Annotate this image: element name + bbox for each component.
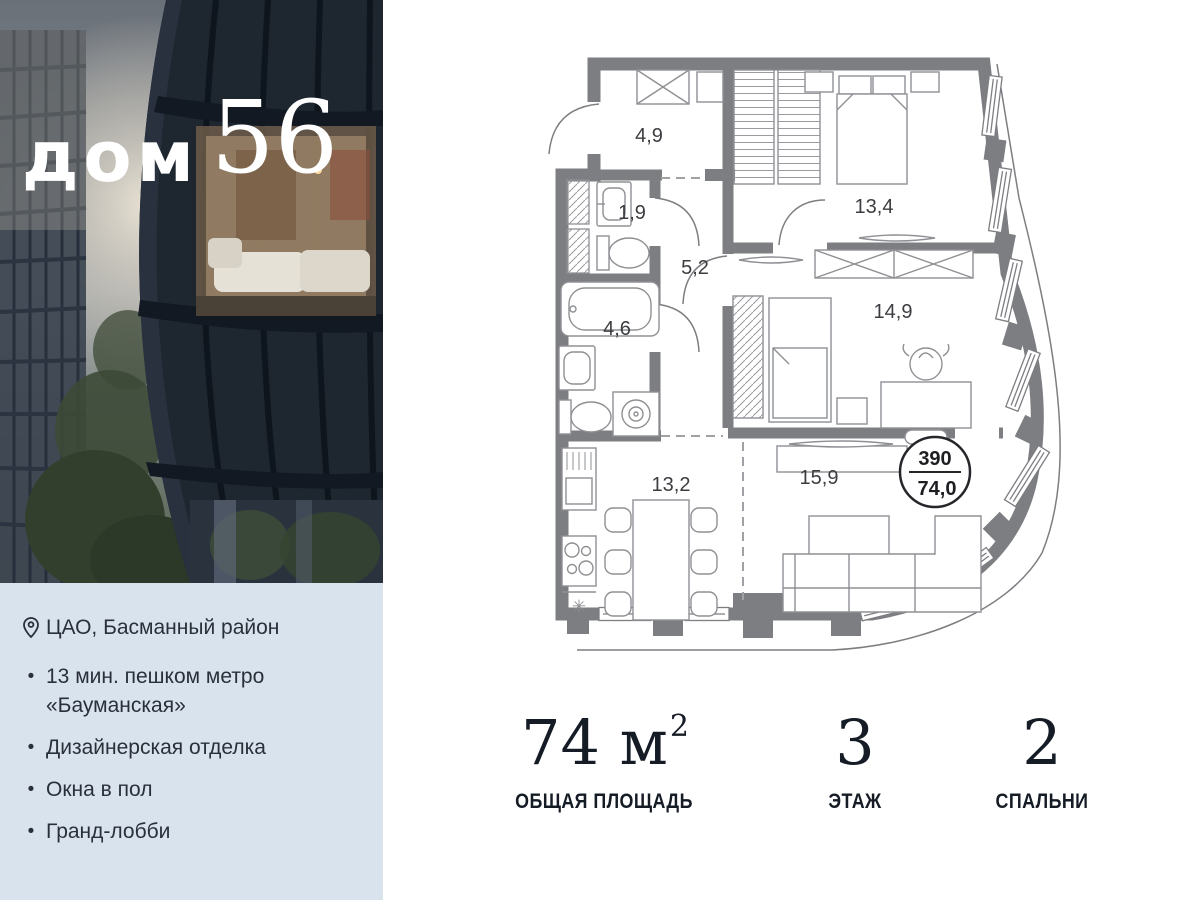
- room-label-corridor: 5,2: [681, 257, 709, 279]
- feature-text: Окна в пол: [46, 775, 152, 804]
- feature-location: ЦАО, Басманный район: [16, 613, 369, 649]
- stat-bedrooms: 2 СПАЛЬНИ: [987, 712, 1096, 814]
- logo: дом 56: [22, 88, 338, 192]
- feature-location-text: ЦАО, Басманный район: [46, 613, 279, 649]
- room-label-bathroom: 4,6: [603, 318, 631, 340]
- feature-text: Дизайнерская отделка: [46, 733, 266, 762]
- feature-text: Гранд-лобби: [46, 817, 170, 846]
- feature-item: • Гранд-лобби: [16, 817, 369, 846]
- bullet-dot: •: [16, 662, 46, 720]
- feature-item: • 13 мин. пешком метро «Бауманская»: [16, 662, 369, 720]
- unit-badge: 390 74,0: [900, 437, 970, 507]
- stat-floor-value: 3: [824, 712, 887, 774]
- stat-total-area-label: ОБЩАЯ ПЛОЩАДЬ: [515, 790, 693, 814]
- room-label-kitchen: 13,2: [652, 474, 691, 496]
- brochure-page: { "logo": { "word": "дом", "number": "56…: [0, 0, 1200, 900]
- stat-floor-label: ЭТАЖ: [828, 790, 881, 814]
- stat-total-area-value: 74 м2: [500, 712, 709, 774]
- badge-unit-number: 390: [918, 448, 951, 470]
- room-label-bedroom2: 14,9: [874, 301, 913, 323]
- room-label-wc: 1,9: [618, 202, 646, 224]
- fridge-icon: ✳: [572, 597, 586, 616]
- feature-item: • Дизайнерская отделка: [16, 733, 369, 762]
- stat-floor: 3 ЭТАЖ: [824, 712, 887, 814]
- stat-bedrooms-label: СПАЛЬНИ: [996, 790, 1089, 814]
- room-label-living: 15,9: [800, 467, 839, 489]
- hall-furniture: [637, 70, 723, 104]
- bullet-dot: •: [16, 733, 46, 762]
- lower-floor: [190, 500, 383, 583]
- stat-bedrooms-value: 2: [987, 712, 1096, 774]
- feature-text: 13 мин. пешком метро «Бауманская»: [46, 662, 369, 720]
- feature-item: • Окна в пол: [16, 775, 369, 804]
- room-label-bedroom1: 13,4: [855, 196, 894, 218]
- bullet-dot: •: [16, 817, 46, 846]
- room-label-hallway: 4,9: [635, 125, 663, 147]
- building-photo: дом 56: [0, 0, 383, 583]
- logo-word: дом: [22, 122, 199, 192]
- stat-total-area: 74 м2 ОБЩАЯ ПЛОЩАДЬ: [500, 712, 709, 814]
- logo-number: 56: [211, 88, 338, 188]
- features-panel: ЦАО, Басманный район • 13 мин. пешком ме…: [0, 583, 383, 900]
- bullet-dot: •: [16, 775, 46, 804]
- floor-plan: ✳ 4,9 1,9 5,2 4,6 13,4 14,9 13,2 15,9 39…: [537, 48, 1112, 708]
- sup-2: 2: [670, 709, 689, 744]
- location-pin-icon: [16, 613, 46, 649]
- badge-area: 74,0: [918, 478, 957, 500]
